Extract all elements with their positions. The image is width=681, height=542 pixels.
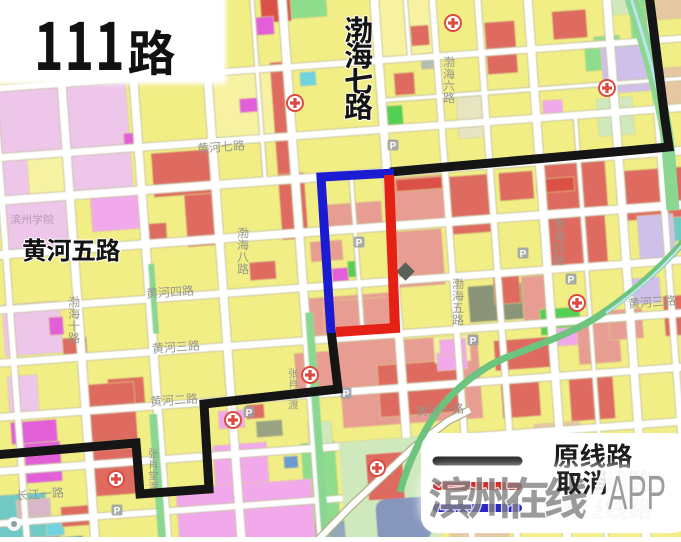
- svg-text:P: P: [246, 408, 253, 419]
- svg-text:P: P: [343, 389, 350, 400]
- svg-text:P: P: [390, 141, 397, 152]
- svg-text:P: P: [568, 275, 575, 286]
- svg-text:P: P: [520, 249, 527, 260]
- svg-text:APP: APP: [608, 467, 666, 520]
- svg-text:P: P: [356, 238, 363, 249]
- svg-text:P: P: [470, 336, 477, 347]
- svg-text:P: P: [114, 506, 121, 517]
